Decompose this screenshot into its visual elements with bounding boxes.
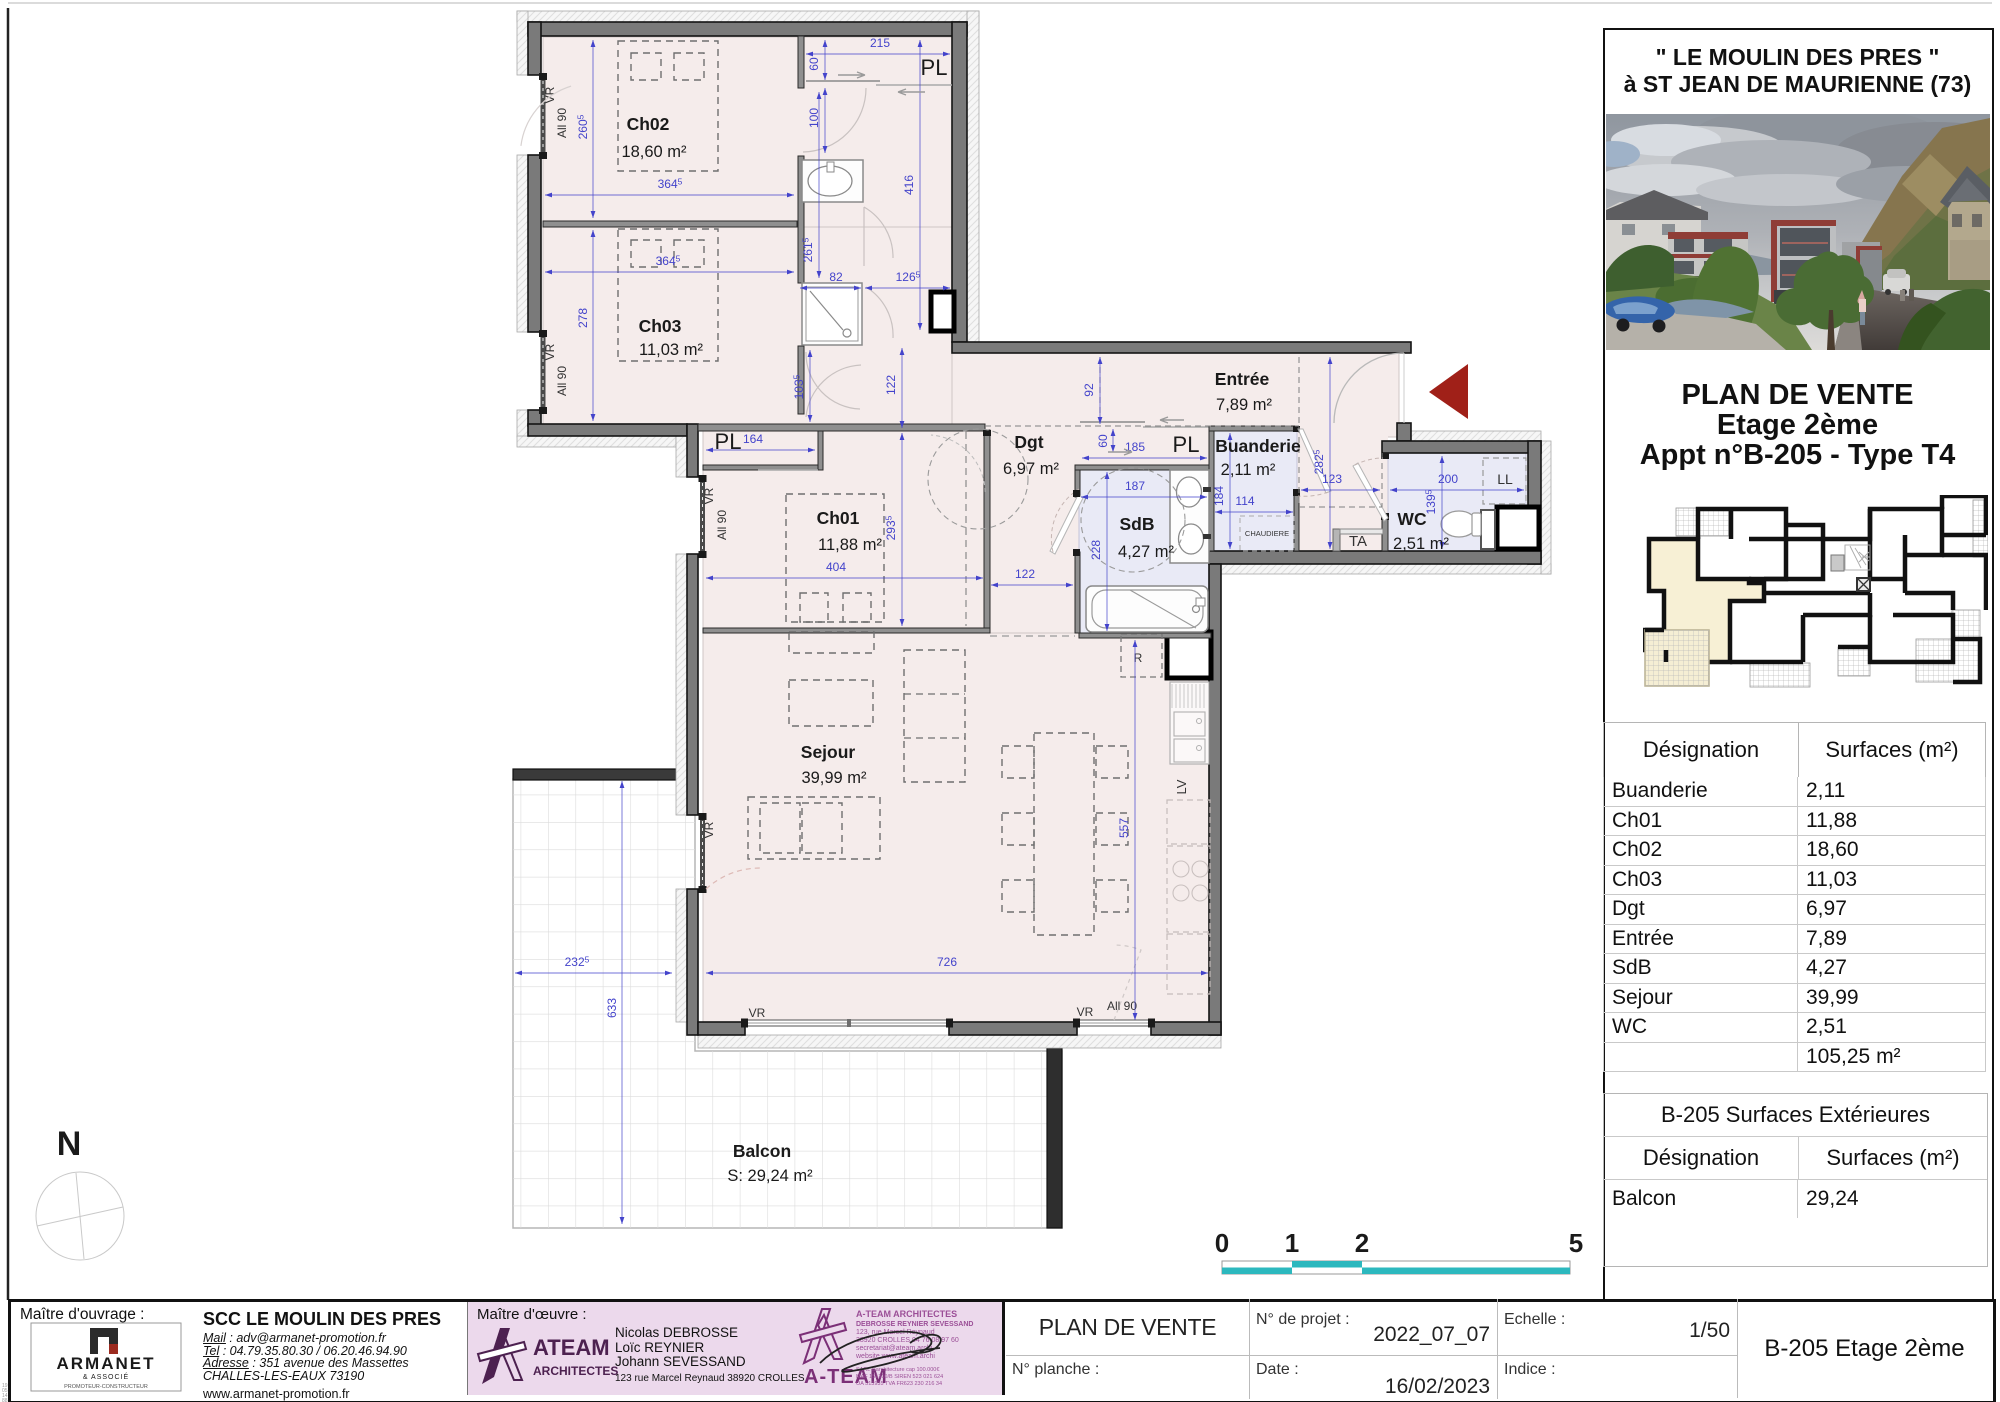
svg-text:92: 92 [1082, 383, 1096, 397]
svg-text:CHAUDIERE: CHAUDIERE [1245, 529, 1289, 538]
svg-text:6,97 m²: 6,97 m² [1003, 460, 1059, 478]
svg-text:VR: VR [749, 1006, 766, 1020]
svg-text:VR: VR [1077, 1005, 1094, 1019]
svg-text:Dgt: Dgt [1014, 432, 1043, 452]
svg-text:ARCHITECTES: ARCHITECTES [533, 1364, 618, 1378]
svg-text:Ch02: Ch02 [627, 114, 670, 134]
svg-text:60: 60 [807, 57, 821, 71]
svg-text:VR: VR [702, 821, 716, 838]
svg-text:PL: PL [715, 429, 742, 454]
svg-text:LV: LV [1174, 779, 1189, 794]
svg-text:726: 726 [937, 955, 957, 969]
svg-text:All 90: All 90 [555, 366, 569, 396]
svg-text:Sejour: Sejour [801, 742, 856, 762]
svg-text:OA 513935 TVA FR623 230 216 34: OA 513935 TVA FR623 230 216 34 [856, 1381, 942, 1387]
svg-text:Balcon: Balcon [733, 1141, 791, 1161]
svg-text:Ch03: Ch03 [639, 316, 682, 336]
svg-text:Ch01: Ch01 [817, 508, 860, 528]
svg-text:All 90: All 90 [715, 510, 729, 540]
svg-text:DEBROSSE REYNIER SEVESSAND: DEBROSSE REYNIER SEVESSAND [856, 1321, 973, 1328]
svg-text:122: 122 [1015, 567, 1035, 581]
svg-text:PROMOTEUR-CONSTRUCTEUR: PROMOTEUR-CONSTRUCTEUR [64, 1384, 148, 1390]
svg-text:2: 2 [1355, 1228, 1369, 1258]
svg-text:122: 122 [884, 375, 898, 395]
svg-text:ATEAM: ATEAM [533, 1335, 610, 1360]
svg-text:A-TEAM ARCHITECTES: A-TEAM ARCHITECTES [856, 1309, 957, 1319]
svg-text:2,11 m²: 2,11 m² [1221, 461, 1276, 479]
svg-text:557: 557 [1117, 818, 1131, 838]
svg-text:215: 215 [870, 36, 890, 50]
svg-text:VR: VR [702, 487, 716, 504]
svg-text:278: 278 [576, 308, 590, 328]
svg-text:N: N [57, 1125, 82, 1163]
svg-text:11,03 m²: 11,03 m² [639, 341, 703, 359]
svg-text:S: 29,24 m²: S: 29,24 m² [727, 1167, 813, 1185]
svg-text:114: 114 [1235, 494, 1254, 508]
svg-text:7,89 m²: 7,89 m² [1216, 396, 1272, 414]
svg-text:1: 1 [1285, 1228, 1299, 1258]
svg-text:MAF 151310/B SIREN 523 021 624: MAF 151310/B SIREN 523 021 624 [856, 1374, 943, 1380]
svg-text:5: 5 [1569, 1228, 1583, 1258]
svg-text:Buanderie: Buanderie [1215, 436, 1301, 456]
svg-text:VR: VR [543, 343, 557, 360]
svg-text:All 90: All 90 [555, 108, 569, 138]
svg-text:LL: LL [1497, 471, 1513, 487]
svg-text:633: 633 [605, 998, 619, 1018]
svg-text:0: 0 [1215, 1228, 1229, 1258]
svg-text:18,60 m²: 18,60 m² [621, 143, 687, 161]
svg-text:200: 200 [1438, 472, 1458, 486]
svg-text:& ASSOCIÉ: & ASSOCIÉ [83, 1372, 129, 1381]
svg-text:38920 CROLLES 04 76 08 97 60: 38920 CROLLES 04 76 08 97 60 [856, 1337, 959, 1344]
svg-text:Entrée: Entrée [1215, 369, 1270, 389]
svg-text:60: 60 [1096, 434, 1110, 448]
svg-text:11,88 m²: 11,88 m² [818, 536, 882, 554]
svg-text:PL: PL [921, 55, 948, 80]
svg-text:WC: WC [1397, 509, 1427, 529]
svg-text:416: 416 [902, 175, 916, 195]
svg-text:39,99 m²: 39,99 m² [801, 769, 867, 787]
svg-text:164: 164 [743, 432, 763, 446]
svg-text:4,27 m²: 4,27 m² [1118, 543, 1174, 561]
svg-text:TA: TA [1349, 533, 1367, 550]
svg-text:PL: PL [1173, 432, 1200, 457]
svg-text:All 90: All 90 [1107, 999, 1137, 1013]
svg-text:228: 228 [1089, 540, 1103, 560]
svg-text:187: 187 [1125, 479, 1145, 493]
svg-text:ARMANET: ARMANET [57, 1354, 156, 1373]
svg-text:2,51 m²: 2,51 m² [1393, 535, 1449, 553]
svg-text:404: 404 [826, 560, 846, 574]
svg-text:184: 184 [1212, 486, 1226, 506]
svg-text:82: 82 [829, 270, 843, 284]
svg-text:SdB: SdB [1120, 514, 1155, 534]
